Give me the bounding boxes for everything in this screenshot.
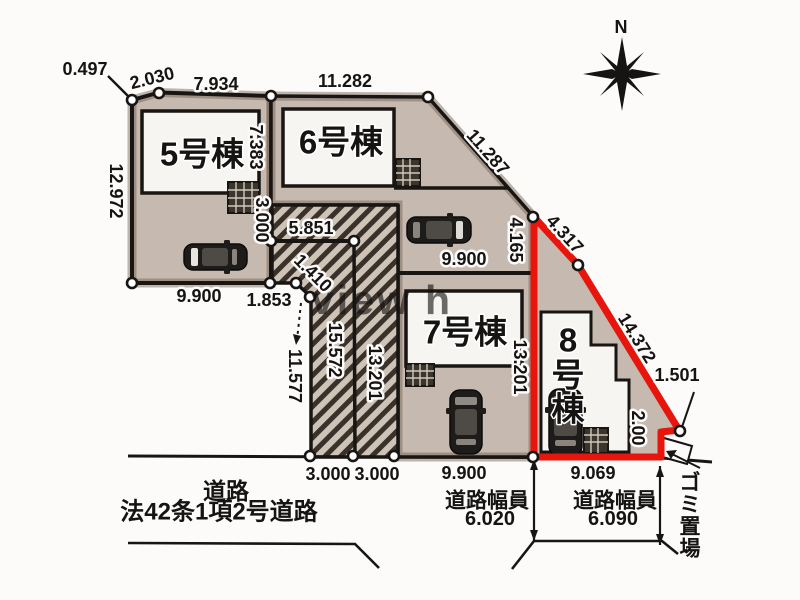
svg-text:6.020: 6.020 [465,508,515,530]
svg-text:12.972: 12.972 [106,163,126,218]
svg-text:7.934: 7.934 [193,74,238,94]
svg-text:1.853: 1.853 [246,290,291,310]
svg-text:置: 置 [680,516,701,539]
svg-text:1.501: 1.501 [654,365,699,385]
svg-text:3.000: 3.000 [354,464,399,484]
svg-text:9.069: 9.069 [570,463,615,483]
svg-text:ゴ: ゴ [680,471,701,495]
svg-text:7.383: 7.383 [246,124,266,169]
svg-text:5.851: 5.851 [288,218,333,238]
svg-text:9.900: 9.900 [441,463,486,483]
svg-text:場: 場 [680,538,701,561]
svg-text:11.577: 11.577 [285,349,305,403]
svg-text:13.201: 13.201 [365,345,385,400]
svg-text:h: h [425,277,450,323]
svg-text:9.900: 9.900 [176,286,221,306]
svg-text:11.282: 11.282 [318,71,372,91]
svg-text:9.900: 9.900 [441,249,486,269]
svg-text:ミ: ミ [680,494,701,517]
svg-text:3.000: 3.000 [252,197,272,242]
svg-text:棟: 棟 [552,391,586,428]
svg-text:6号棟: 6号棟 [299,124,384,161]
svg-text:4.165: 4.165 [506,217,526,262]
svg-text:2.00: 2.00 [628,410,648,445]
svg-text:5号棟: 5号棟 [160,136,245,173]
svg-text:13.201: 13.201 [510,339,530,394]
svg-text:view: view [311,277,412,323]
svg-text:3.000: 3.000 [305,464,350,484]
svg-text:0.497: 0.497 [62,59,107,79]
svg-text:号: 号 [552,357,585,394]
svg-text:N: N [615,17,628,37]
svg-text:8: 8 [559,322,577,359]
svg-text:15.572: 15.572 [325,322,345,377]
svg-text:法42条1項2号道路: 法42条1項2号道路 [120,498,318,526]
svg-text:6.090: 6.090 [588,508,638,530]
